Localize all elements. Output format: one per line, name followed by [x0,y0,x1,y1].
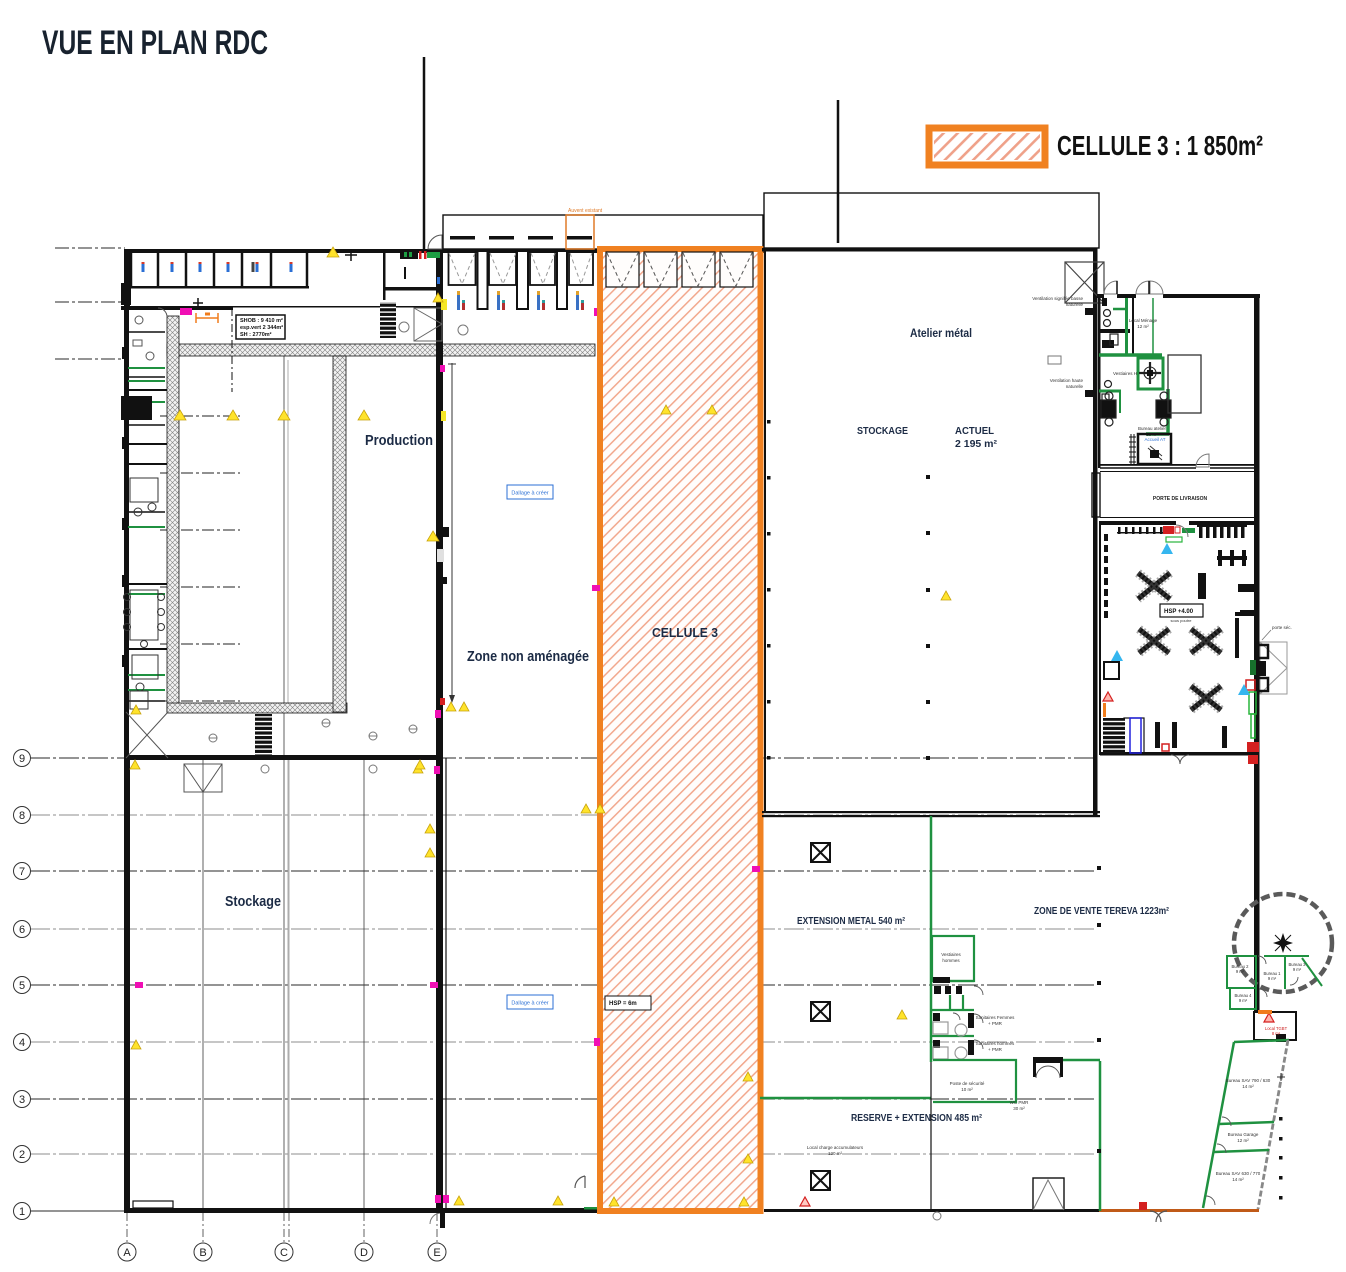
svg-text:14 m²: 14 m² [1232,1177,1244,1182]
svg-text:7: 7 [19,866,25,878]
svg-text:A: A [123,1247,131,1259]
svg-text:120 m²: 120 m² [828,1151,843,1156]
svg-text:Vestiaires H: Vestiaires H [1113,371,1137,376]
svg-text:Local charge accumulateurs: Local charge accumulateurs [807,1145,864,1150]
svg-text:HSP +4.00: HSP +4.00 [1164,609,1194,615]
svg-text:9: 9 [19,753,25,765]
svg-text:hommes: hommes [942,958,960,963]
svg-text:9 m²: 9 m² [1293,967,1302,972]
svg-text:sous poutre: sous poutre [1171,618,1193,623]
svg-text:+ PMR: + PMR [988,1021,1003,1026]
svg-text:9 m²: 9 m² [1268,976,1277,981]
svg-text:Dallage à créer: Dallage à créer [511,1001,548,1007]
svg-text:+ PMR: + PMR [988,1047,1003,1052]
svg-text:Auvent existant: Auvent existant [568,208,603,214]
svg-text:9 m²: 9 m² [1236,969,1245,974]
svg-text:12 m²: 12 m² [1137,324,1149,329]
svg-text:Local Ménage: Local Ménage [1129,318,1158,323]
svg-text:Bureau SAV 790 / 630: Bureau SAV 790 / 630 [1226,1078,1271,1083]
svg-text:HSP = 6m: HSP = 6m [609,1001,637,1007]
svg-text:B: B [199,1247,206,1259]
svg-text:EXTENSION METAL 540 m²: EXTENSION METAL 540 m² [797,915,905,927]
svg-text:PORTE DE LIVRAISON: PORTE DE LIVRAISON [1153,496,1208,502]
svg-text:1: 1 [19,1206,25,1218]
svg-text:naturelle: naturelle [1066,302,1084,307]
svg-text:4: 4 [19,1037,25,1049]
svg-text:E: E [433,1247,440,1259]
svg-text:Vestiaires: Vestiaires [941,952,961,957]
svg-text:Dallage à créer: Dallage à créer [511,491,548,497]
svg-text:D: D [360,1247,368,1259]
svg-text:naturelle: naturelle [1066,384,1084,389]
svg-text:5: 5 [19,980,25,992]
svg-text:CELLULE 3 : 1 850m²: CELLULE 3 : 1 850m² [1057,130,1263,161]
svg-text:12 m²: 12 m² [1237,1138,1249,1143]
svg-text:Production: Production [365,432,433,449]
svg-text:Bureau SAV 630 / 770: Bureau SAV 630 / 770 [1216,1171,1261,1176]
svg-text:2: 2 [19,1149,25,1161]
svg-text:Poste de sécurité: Poste de sécurité [950,1081,985,1086]
svg-text:porte séc.: porte séc. [1272,625,1292,630]
svg-text:3: 3 [19,1094,25,1106]
svg-text:SHOB : 9 410 m²: SHOB : 9 410 m² [240,317,283,324]
svg-text:ACTUEL: ACTUEL [955,425,995,437]
svg-text:VUE EN PLAN RDC: VUE EN PLAN RDC [42,24,268,62]
svg-text:Ventilation haute: Ventilation haute [1050,378,1084,383]
svg-text:RESERVE + EXTENSION 485 m²: RESERVE + EXTENSION 485 m² [851,1112,982,1124]
svg-text:ZONE DE VENTE TEREVA 1223m²: ZONE DE VENTE TEREVA 1223m² [1034,905,1169,917]
svg-text:Bureau atelier: Bureau atelier [1138,426,1167,431]
svg-text:2 195 m²: 2 195 m² [955,438,997,450]
svg-text:Ventilation signifée basse: Ventilation signifée basse [1032,296,1083,301]
svg-text:Bureau Garage: Bureau Garage [1228,1132,1259,1137]
svg-text:Zone non aménagée: Zone non aménagée [467,648,589,665]
svg-text:C: C [280,1247,288,1259]
svg-text:6: 6 [19,924,25,936]
svg-text:WC PMR: WC PMR [1010,1100,1029,1105]
svg-text:30 m²: 30 m² [1013,1106,1025,1111]
svg-text:Stockage: Stockage [225,893,281,910]
svg-text:10 m²: 10 m² [961,1087,973,1092]
svg-text:CELLULE 3: CELLULE 3 [652,625,718,640]
svg-text:8 m²: 8 m² [1272,1031,1281,1036]
svg-text:8: 8 [19,810,25,822]
svg-text:esp.vert 2 344m²: esp.vert 2 344m² [240,324,283,331]
svg-text:Atelier métal: Atelier métal [910,326,972,340]
svg-text:Accueil AT: Accueil AT [1145,437,1166,442]
svg-text:STOCKAGE: STOCKAGE [857,425,908,437]
svg-text:14 m²: 14 m² [1242,1084,1254,1089]
svg-text:SH : 2770m²: SH : 2770m² [240,331,272,338]
svg-text:9 m²: 9 m² [1239,998,1248,1003]
